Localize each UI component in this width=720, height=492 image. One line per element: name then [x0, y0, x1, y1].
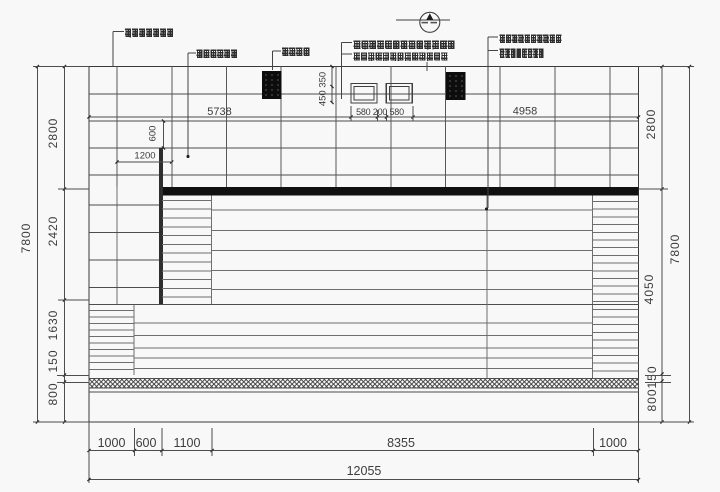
svg-text:4050: 4050 [642, 274, 656, 305]
svg-text:1200: 1200 [134, 151, 155, 162]
svg-text:150: 150 [645, 365, 659, 388]
svg-text:150: 150 [46, 349, 60, 372]
svg-text:1100: 1100 [174, 436, 201, 450]
svg-text:600: 600 [148, 126, 159, 142]
svg-text:2800: 2800 [644, 109, 658, 140]
svg-text:5738: 5738 [207, 106, 231, 118]
svg-text:1000: 1000 [599, 436, 627, 450]
svg-text:1630: 1630 [46, 310, 60, 341]
svg-text:7800: 7800 [19, 223, 33, 254]
svg-text:800: 800 [46, 382, 60, 405]
svg-text:2420: 2420 [46, 216, 60, 247]
svg-text:12055: 12055 [347, 464, 382, 478]
svg-text:600: 600 [136, 436, 157, 450]
svg-text:2800: 2800 [46, 118, 60, 149]
svg-text:1000: 1000 [98, 436, 126, 450]
svg-text:800: 800 [645, 388, 659, 411]
svg-text:580 200 580: 580 200 580 [356, 107, 404, 117]
svg-text:4958: 4958 [513, 106, 537, 118]
svg-text:7800: 7800 [668, 234, 682, 265]
svg-text:8355: 8355 [387, 436, 415, 450]
svg-text:450 350: 450 350 [318, 72, 329, 106]
